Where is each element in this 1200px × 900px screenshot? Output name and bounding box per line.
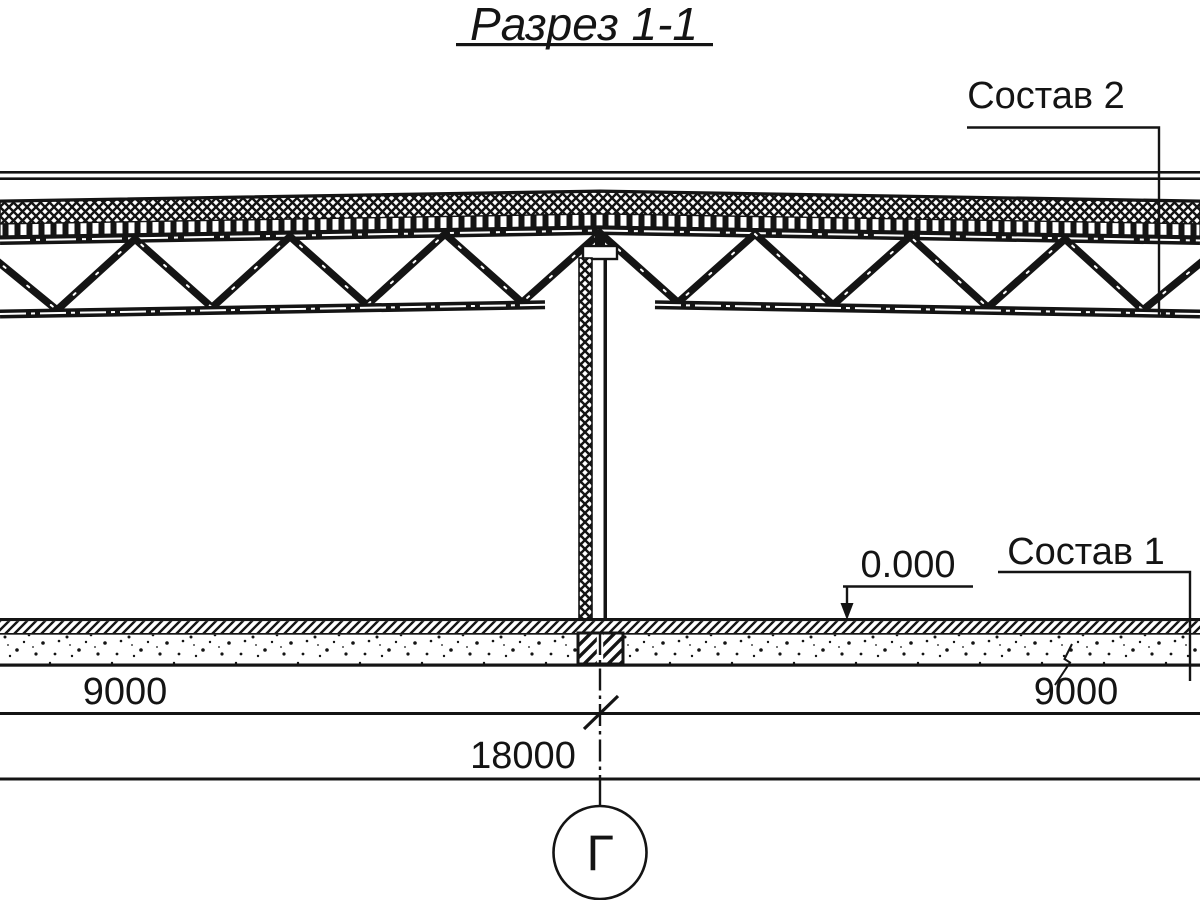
central-column <box>579 233 617 620</box>
column-shaft-edge-line <box>604 258 608 620</box>
dimension-text-span-right: 9000 <box>1034 671 1119 713</box>
roof-top-edge-line-lower <box>0 177 1200 180</box>
column-cap-plate <box>583 246 617 259</box>
section-drawing: Разрез 1-1 <box>0 0 1200 900</box>
dimension-text-total: 18000 <box>470 735 576 777</box>
callout-floor-label: Состав 1 <box>1007 531 1165 573</box>
drawing-sheet: Разрез 1-1 <box>0 0 1200 900</box>
axis-marker-label: Г <box>586 825 613 881</box>
roof-top-edge-line-upper <box>0 171 1200 174</box>
callout-roof-label: Состав 2 <box>967 75 1125 117</box>
dimension-text-span-left: 9000 <box>83 671 168 713</box>
page-title: Разрез 1-1 <box>470 0 698 50</box>
floor-screed-hatch-band <box>0 621 1200 633</box>
column-shaft-hatched-face <box>579 258 592 620</box>
level-mark-value: 0.000 <box>860 544 955 586</box>
level-mark-arrow-icon <box>841 603 854 620</box>
callout-roof-composition: Состав 2 <box>967 75 1159 317</box>
level-mark-shelf-line <box>843 587 973 606</box>
drawing-title-block: Разрез 1-1 <box>456 0 713 50</box>
title-underline <box>456 43 713 46</box>
floor-top-line <box>0 618 1200 621</box>
level-mark: 0.000 <box>841 544 974 620</box>
